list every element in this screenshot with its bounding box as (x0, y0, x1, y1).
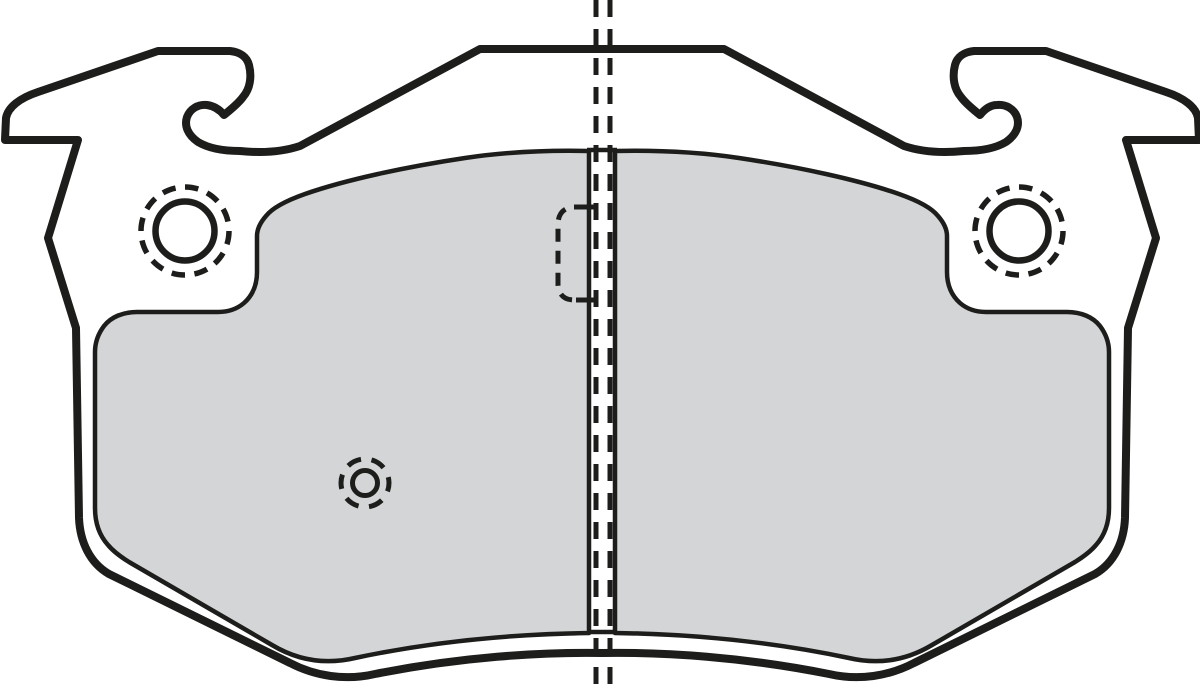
diagram-canvas (0, 0, 1200, 685)
brake-pad-diagram (0, 0, 1200, 685)
guide-hole-left (141, 187, 229, 275)
drawing-root (5, 0, 1199, 685)
guide-hole-left-bore-circle (156, 202, 215, 261)
guide-hole-right (975, 187, 1063, 275)
guide-hole-right-bore-circle (990, 202, 1049, 261)
